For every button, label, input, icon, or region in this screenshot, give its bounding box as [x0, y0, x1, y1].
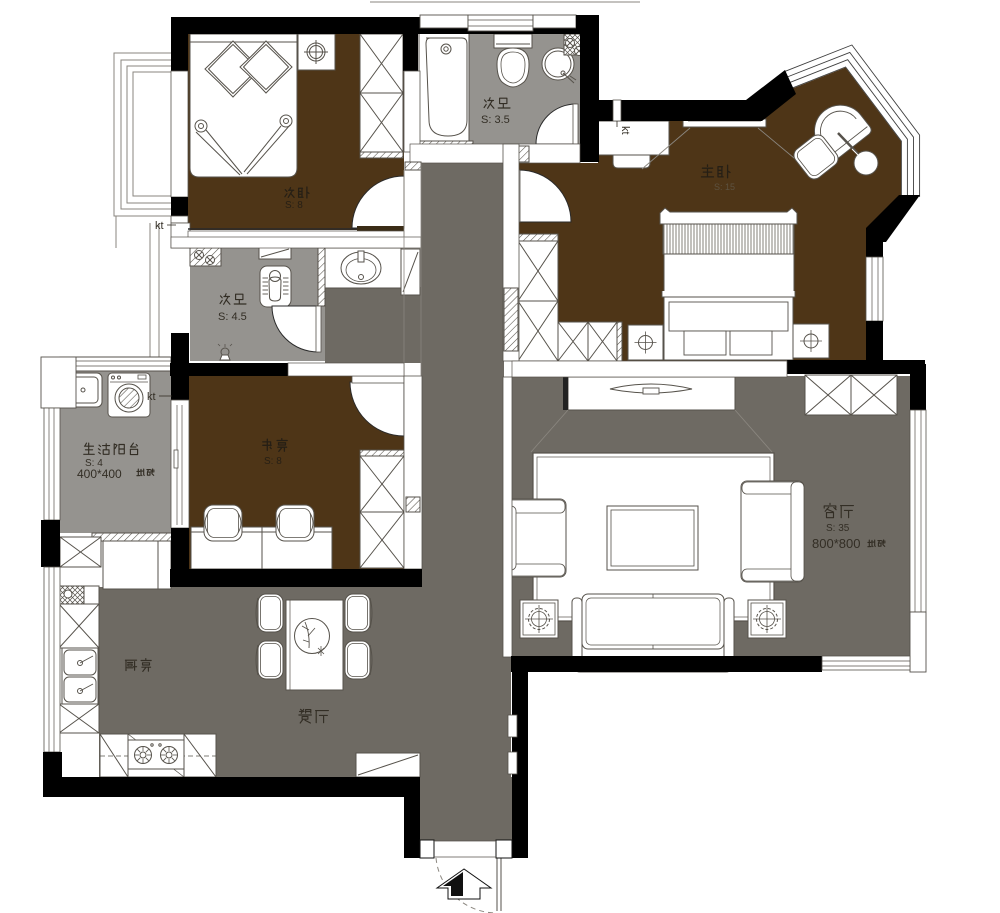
svg-text:S: 35: S: 35: [826, 523, 850, 534]
svg-text:S: 3.5: S: 3.5: [481, 114, 510, 126]
svg-text:S: 15: S: 15: [714, 182, 735, 192]
svg-text:kt: kt: [155, 220, 164, 232]
svg-text:400*400: 400*400: [77, 467, 122, 481]
svg-text:kt: kt: [147, 391, 156, 403]
svg-text:S: 4.5: S: 4.5: [218, 311, 247, 323]
svg-text:kt: kt: [619, 126, 631, 135]
svg-text:S: 8: S: 8: [264, 456, 282, 467]
svg-text:S: 8: S: 8: [285, 200, 303, 211]
svg-text:800*800: 800*800: [812, 536, 860, 551]
